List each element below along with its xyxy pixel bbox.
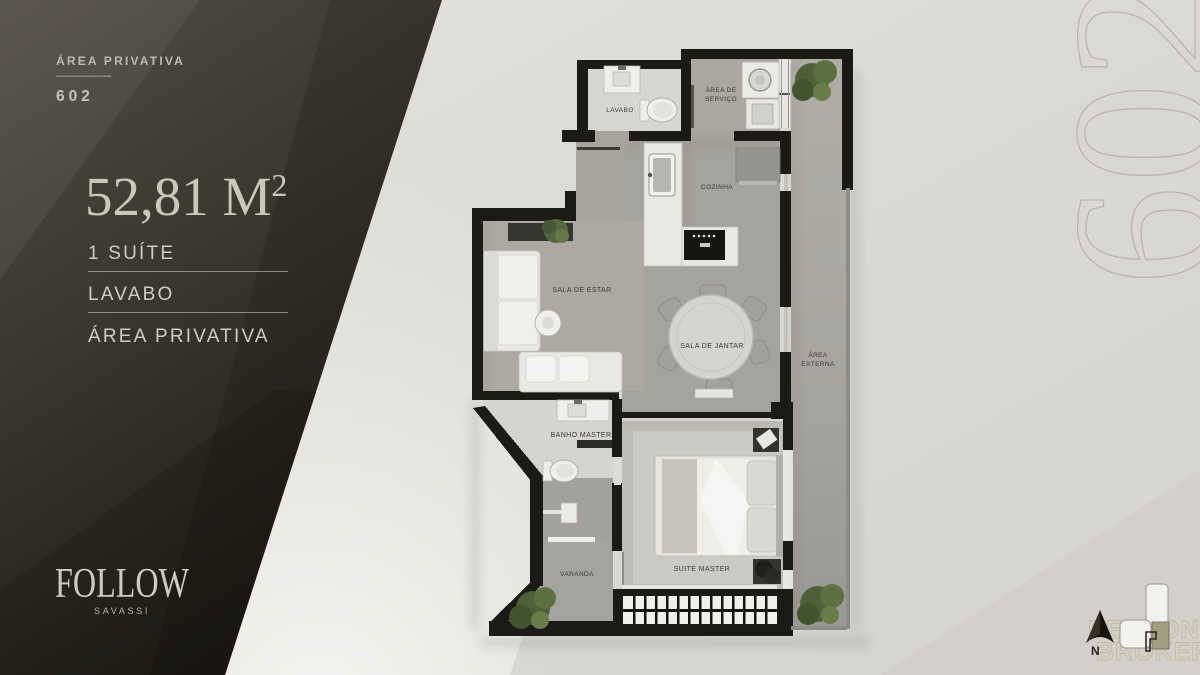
svg-text:FOLLOW: FOLLOW — [55, 561, 189, 607]
svg-text:602: 602 — [56, 88, 94, 105]
svg-text:ÁREA PRIVATIVA: ÁREA PRIVATIVA — [88, 326, 270, 347]
svg-text:SALA DE ESTAR: SALA DE ESTAR — [552, 287, 611, 294]
svg-text:LAVABO: LAVABO — [606, 107, 633, 114]
svg-text:COZINHA: COZINHA — [701, 184, 733, 191]
svg-text:SALA DE JANTAR: SALA DE JANTAR — [680, 343, 743, 350]
svg-text:SERVIÇO: SERVIÇO — [705, 96, 737, 103]
svg-text:52,81 M2: 52,81 M2 — [85, 166, 287, 227]
svg-text:EXTERNA: EXTERNA — [801, 361, 835, 368]
svg-text:1 SUÍTE: 1 SUÍTE — [88, 243, 175, 264]
svg-text:N: N — [1091, 644, 1100, 658]
svg-text:VARANDA: VARANDA — [560, 571, 594, 578]
svg-text:BANHO MASTER: BANHO MASTER — [551, 432, 612, 439]
svg-text:SUITE MASTER: SUITE MASTER — [674, 566, 731, 573]
svg-text:602: 602 — [1033, 0, 1200, 286]
svg-text:LAVABO: LAVABO — [88, 284, 174, 305]
svg-text:ÁREA: ÁREA — [808, 350, 828, 359]
svg-text:SAVASSI: SAVASSI — [94, 606, 150, 616]
svg-text:ÁREA PRIVATIVA: ÁREA PRIVATIVA — [56, 53, 185, 68]
svg-text:ÁREA DE: ÁREA DE — [706, 85, 737, 94]
